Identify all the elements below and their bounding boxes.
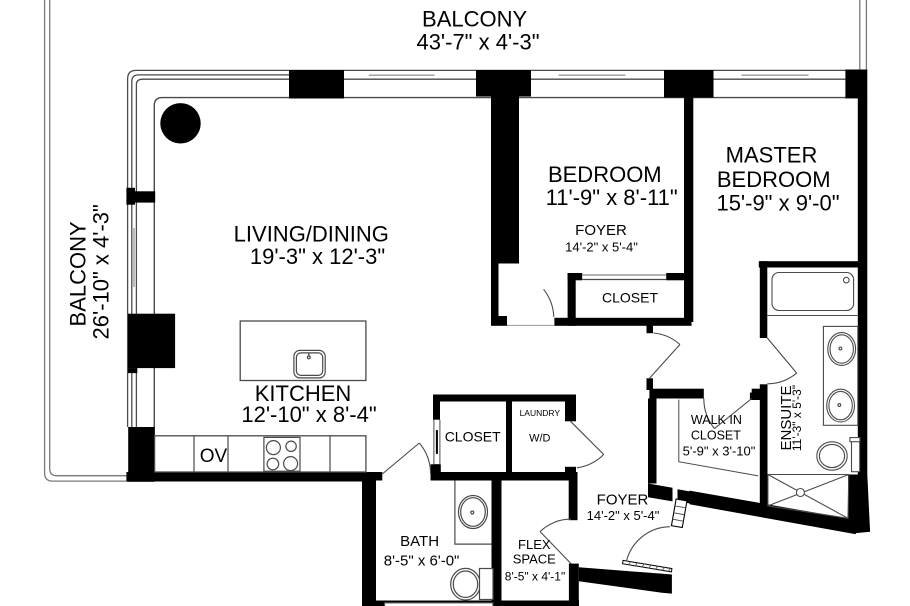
svg-text:SPACE: SPACE <box>513 552 556 567</box>
svg-text:14'-2" x 5'-4": 14'-2" x 5'-4" <box>587 508 660 523</box>
svg-text:19'-3" x 12'-3": 19'-3" x 12'-3" <box>250 244 385 269</box>
svg-text:43'-7" x 4'-3": 43'-7" x 4'-3" <box>416 30 539 55</box>
svg-text:CLOSET: CLOSET <box>602 290 658 306</box>
svg-text:15'-9" x 9'-0": 15'-9" x 9'-0" <box>716 191 839 216</box>
svg-text:WALK IN: WALK IN <box>691 413 742 427</box>
svg-text:8'-5" x 6'-0": 8'-5" x 6'-0" <box>384 553 460 570</box>
svg-text:8'-5" x 4'-1": 8'-5" x 4'-1" <box>505 570 565 584</box>
svg-text:11'-9" x 8'-11": 11'-9" x 8'-11" <box>546 185 678 210</box>
svg-text:W/D: W/D <box>529 433 550 445</box>
svg-text:CLOSET: CLOSET <box>691 429 741 443</box>
svg-text:FOYER: FOYER <box>597 491 649 508</box>
svg-text:5'-9" x 3'-10": 5'-9" x 3'-10" <box>683 443 756 458</box>
svg-text:12'-10" x 8'-4": 12'-10" x 8'-4" <box>241 402 376 427</box>
svg-text:LAUNDRY: LAUNDRY <box>520 408 561 418</box>
svg-text:11'-3" x 5'-3": 11'-3" x 5'-3" <box>790 385 804 451</box>
svg-text:14'-2" x 5'-4": 14'-2" x 5'-4" <box>565 239 638 254</box>
svg-text:26'-10" x 4'-3": 26'-10" x 4'-3" <box>89 204 114 339</box>
svg-text:CLOSET: CLOSET <box>445 429 501 445</box>
svg-text:BEDROOM: BEDROOM <box>548 162 662 187</box>
svg-text:LIVING/DINING: LIVING/DINING <box>234 222 389 247</box>
svg-text:FOYER: FOYER <box>575 222 627 239</box>
svg-text:MASTER: MASTER <box>726 142 818 167</box>
svg-text:BATH: BATH <box>400 533 439 550</box>
svg-text:BALCONY: BALCONY <box>422 7 527 32</box>
svg-text:BEDROOM: BEDROOM <box>717 167 831 192</box>
svg-text:BALCONY: BALCONY <box>66 221 91 326</box>
svg-text:OV: OV <box>200 446 228 467</box>
svg-text:FLEX: FLEX <box>518 537 551 552</box>
